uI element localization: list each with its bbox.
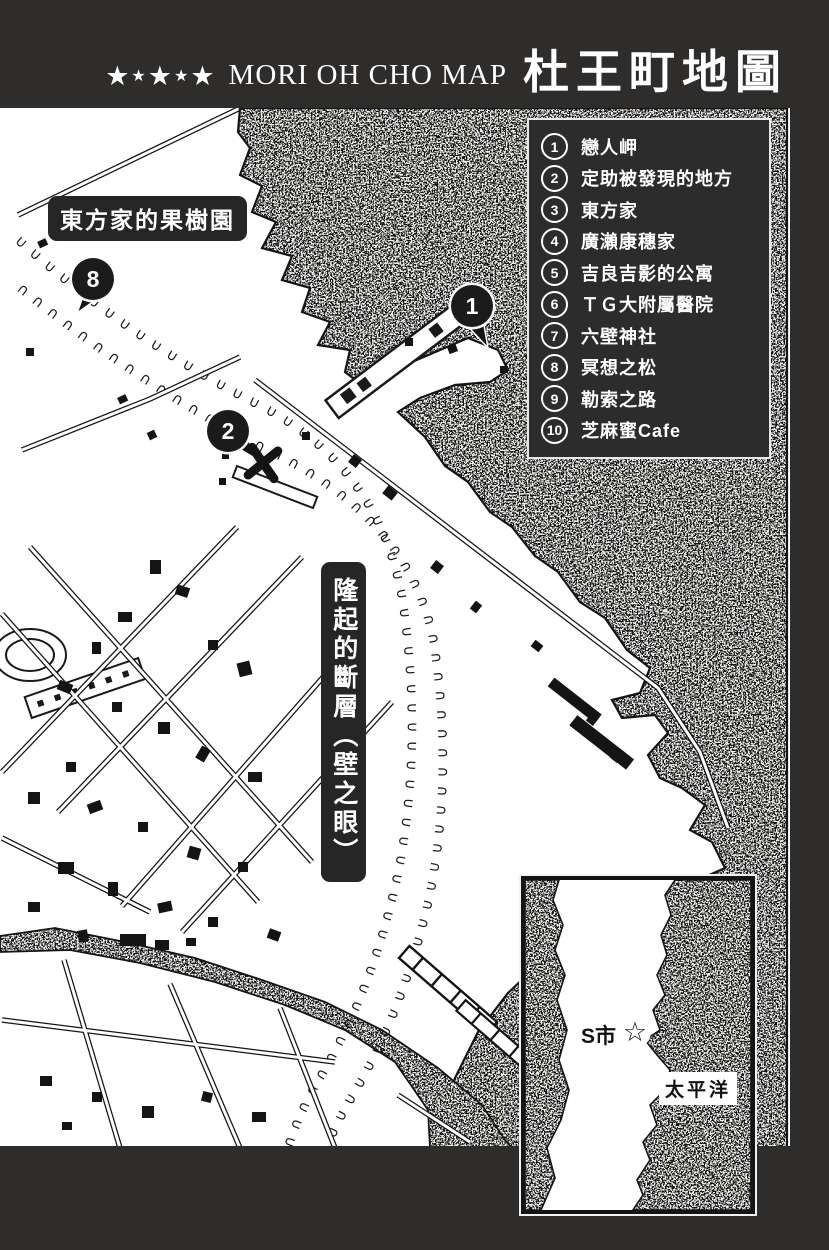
legend-number-badge: 9 — [541, 385, 568, 412]
legend-number-badge: 4 — [541, 228, 568, 255]
legend-label: 六壁神社 — [581, 323, 657, 349]
legend-item: 8冥想之松 — [541, 354, 757, 381]
legend-item: 6ＴＧ大附屬醫院 — [541, 291, 757, 318]
map-legend: 1戀人岬 2定助被發現的地方 3東方家 4廣瀨康穗家 5吉良吉影的公寓 6ＴＧ大… — [527, 118, 771, 459]
legend-label: 戀人岬 — [581, 134, 638, 160]
legend-item: 2定助被發現的地方 — [541, 165, 757, 192]
fault-label: 隆起的斷層（壁之眼） — [321, 562, 366, 882]
legend-label: 冥想之松 — [581, 354, 657, 380]
legend-item: 7六壁神社 — [541, 322, 757, 349]
region-inset-map: S市 ☆ 太平洋 — [521, 876, 755, 1214]
legend-label: 東方家 — [581, 197, 638, 223]
star-icon: ★ — [131, 69, 145, 85]
legend-label: 吉良吉影的公寓 — [581, 260, 714, 286]
legend-label: ＴＧ大附屬醫院 — [581, 291, 714, 317]
legend-number-badge: 6 — [541, 291, 568, 318]
legend-number-badge: 5 — [541, 259, 568, 286]
legend-item: 1戀人岬 — [541, 133, 757, 160]
city-star-icon: ☆ — [619, 1016, 651, 1048]
legend-number-badge: 10 — [541, 417, 568, 444]
title-band: ★ ★ ★ ★ ★ MORI OH CHO MAP 杜王町地圖 — [0, 0, 810, 106]
legend-label: 芝麻蜜Cafe — [581, 417, 681, 443]
map-marker-1: 1 — [451, 285, 493, 327]
manga-map-page: ★ ★ ★ ★ ★ MORI OH CHO MAP 杜王町地圖 — [0, 0, 829, 1250]
legend-item: 9勒索之路 — [541, 385, 757, 412]
star-icon: ★ — [105, 63, 129, 90]
legend-item: 4廣瀨康穗家 — [541, 228, 757, 255]
inset-ocean-label: 太平洋 — [659, 1072, 737, 1105]
legend-label: 定助被發現的地方 — [581, 165, 733, 191]
star-icon: ★ — [148, 63, 172, 90]
orchard-label: 東方家的果樹園 — [48, 196, 247, 241]
legend-number-badge: 7 — [541, 322, 568, 349]
title-romaji: MORI OH CHO MAP — [229, 59, 507, 92]
legend-number-badge: 1 — [541, 133, 568, 160]
star-icon: ★ — [190, 63, 214, 90]
legend-label: 勒索之路 — [581, 386, 657, 412]
legend-item: 10芝麻蜜Cafe — [541, 417, 757, 444]
legend-number-badge: 3 — [541, 196, 568, 223]
legend-number-badge: 8 — [541, 354, 568, 381]
legend-label: 廣瀨康穗家 — [581, 228, 676, 254]
page-title: 杜王町地圖 — [523, 50, 788, 96]
star-icon: ★ — [174, 69, 188, 85]
map-marker-2: 2 — [207, 410, 249, 452]
legend-item: 3東方家 — [541, 196, 757, 223]
legend-item: 5吉良吉影的公寓 — [541, 259, 757, 286]
map-marker-8: 8 — [72, 258, 114, 300]
legend-number-badge: 2 — [541, 165, 568, 192]
inset-city-label: S市 — [581, 1020, 616, 1050]
title-stars: ★ ★ ★ ★ ★ — [105, 63, 214, 90]
port-docks — [548, 678, 634, 770]
